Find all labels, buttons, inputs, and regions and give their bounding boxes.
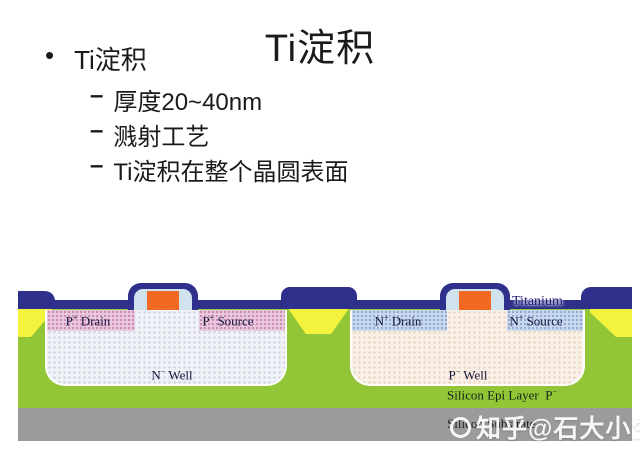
dash-marker: –: [90, 117, 103, 145]
n-drain-label: N+ Drain: [350, 314, 446, 329]
p-source-label: P+ Source: [180, 314, 276, 329]
label-text: Well: [165, 367, 192, 382]
watermark: 知乎@石大小生: [450, 409, 640, 445]
sub-bullet-label: 溅射工艺: [113, 117, 209, 152]
titanium-step-middle: [281, 287, 357, 309]
gate-poly-nmos: [459, 291, 491, 310]
label-text: P: [202, 313, 209, 328]
bullet-item: • Ti淀积: [45, 40, 147, 77]
p-well-label: P− Well: [420, 368, 516, 383]
zhihu-logo-icon: [450, 417, 471, 438]
titanium-step-left: [18, 291, 55, 309]
titanium-step-right: [581, 287, 632, 309]
gate-poly-pmos: [147, 291, 179, 310]
label-text: P: [66, 313, 73, 328]
epi-layer-label: Silicon Epi Layer P−: [447, 388, 557, 403]
label-text: Drain: [77, 313, 110, 328]
label-text: N: [509, 313, 518, 328]
label-text: P: [448, 367, 455, 382]
sub-bullet-label: Ti淀积在整个晶圆表面: [113, 152, 348, 187]
sub-bullet-label: 厚度20~40nm: [113, 82, 262, 117]
label-sup: −: [552, 387, 557, 396]
label-text: Source: [523, 313, 562, 328]
label-text: N: [375, 313, 384, 328]
label-text: Drain: [389, 313, 422, 328]
dash-marker: –: [90, 82, 103, 110]
sub-bullet-item: – Ti淀积在整个晶圆表面: [90, 152, 348, 187]
n-well-label: N− Well: [124, 368, 220, 383]
n-source-label: N+ Source: [488, 314, 584, 329]
watermark-text: 知乎@石大小生: [476, 409, 640, 445]
label-text: Source: [214, 313, 253, 328]
slide: Ti淀积 • Ti淀积 – 厚度20~40nm – 溅射工艺 – Ti淀积在整个…: [0, 0, 640, 451]
label-text: Well: [460, 367, 487, 382]
label-text: N: [151, 367, 160, 382]
label-text: Silicon Epi Layer P: [447, 387, 552, 402]
p-drain-label: P+ Drain: [40, 314, 136, 329]
bullet-label: Ti淀积: [74, 40, 147, 77]
sub-bullet-item: – 厚度20~40nm: [90, 82, 262, 117]
sub-bullet-item: – 溅射工艺: [90, 117, 209, 152]
cmos-cross-section-diagram: P+ Drain P+ Source N+ Drain N+ Source N−…: [18, 283, 632, 443]
dash-marker: –: [90, 152, 103, 180]
titanium-label: Titanium: [512, 294, 563, 309]
bullet-marker: •: [45, 40, 54, 71]
